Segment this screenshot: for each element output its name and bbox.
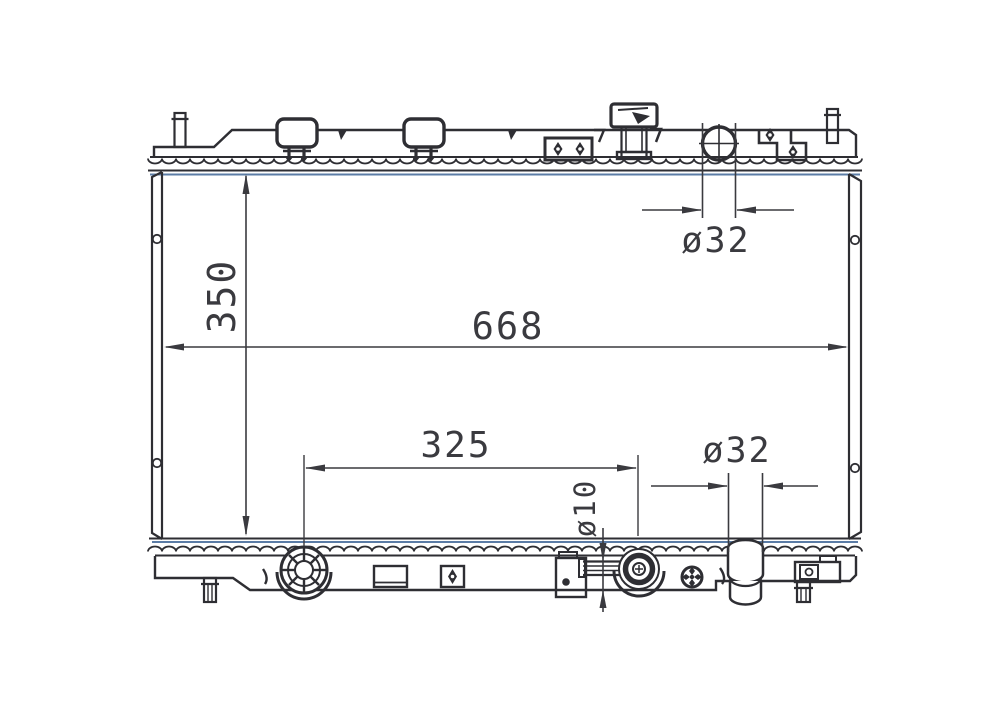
bottom-left-pin — [201, 578, 219, 602]
dim-668-label: 668 — [472, 305, 545, 348]
top-tank — [154, 104, 856, 163]
top-stepped-bracket — [759, 128, 806, 160]
top-tank-outline — [154, 130, 856, 158]
mark-tick — [263, 569, 267, 584]
header-crimp-top — [148, 159, 862, 164]
side-plate-hole — [851, 236, 859, 244]
side-plate-hole — [153, 459, 161, 467]
side-plate-left — [152, 172, 162, 539]
top-left-pin — [172, 113, 189, 147]
dimension-outlet-diameter: ø32 — [651, 431, 818, 552]
mounting-clip-right — [404, 119, 444, 162]
dim-325-label: 325 — [420, 425, 491, 466]
bottom-right-bracket — [794, 556, 840, 602]
dim-350-label: 350 — [200, 259, 244, 334]
dimension-overall-width: 668 — [164, 305, 848, 351]
weld-tick-1 — [338, 130, 347, 140]
outlet-pipe — [728, 540, 763, 605]
side-plate-hole — [153, 235, 161, 243]
bottom-rect-fitting — [374, 566, 407, 587]
weld-tick-3 — [594, 130, 604, 142]
dim-inlet-label: ø32 — [681, 221, 750, 261]
top-right-pin — [824, 109, 841, 143]
dimension-core-height: 350 — [200, 174, 250, 536]
filler-cap — [611, 104, 657, 159]
side-plate-right — [849, 174, 861, 539]
header-band-top — [148, 157, 862, 175]
bottom-rivet-bracket — [441, 566, 464, 587]
dim-outlet-label: ø32 — [702, 431, 771, 471]
side-plate-hole — [851, 464, 859, 472]
radiator-technical-drawing: 350 668 325 ø32 ø32 — [0, 0, 998, 709]
drain-plug — [277, 547, 331, 599]
dim-oilcooler-pipe-label: ø10 — [568, 479, 602, 537]
star-clip — [682, 567, 702, 587]
drawing-canvas: 350 668 325 ø32 ø32 — [0, 0, 998, 709]
weld-tick-2 — [508, 130, 517, 140]
mounting-clip-left — [277, 119, 317, 162]
dimension-oilcooler-pipe: ø10 — [568, 479, 607, 612]
